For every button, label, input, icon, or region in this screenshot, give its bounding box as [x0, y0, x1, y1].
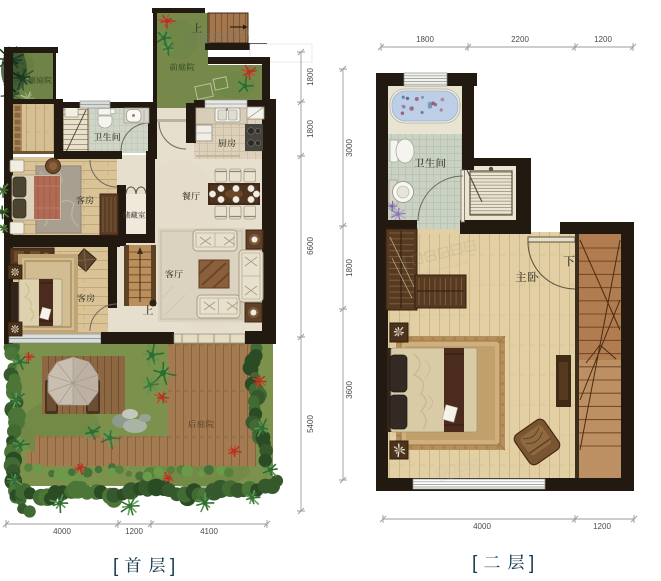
svg-text:4000: 4000	[473, 522, 491, 531]
svg-text:4100: 4100	[200, 527, 218, 536]
svg-text:2200: 2200	[511, 35, 529, 44]
svg-text:5400: 5400	[306, 415, 315, 433]
svg-text:3000: 3000	[345, 139, 354, 157]
svg-text:1200: 1200	[125, 527, 143, 536]
svg-text:3600: 3600	[345, 381, 354, 399]
svg-text:6600: 6600	[306, 237, 315, 255]
svg-text:]: ]	[170, 556, 175, 577]
svg-text:]: ]	[529, 553, 534, 574]
svg-text:4000: 4000	[53, 527, 71, 536]
svg-text:1800: 1800	[306, 68, 315, 86]
svg-text:[: [	[472, 553, 478, 574]
svg-text:1800: 1800	[416, 35, 434, 44]
svg-text:[: [	[113, 556, 119, 577]
svg-text:1800: 1800	[345, 259, 354, 277]
svg-text:1200: 1200	[594, 35, 612, 44]
svg-text:1200: 1200	[593, 522, 611, 531]
svg-text:1800: 1800	[306, 120, 315, 138]
